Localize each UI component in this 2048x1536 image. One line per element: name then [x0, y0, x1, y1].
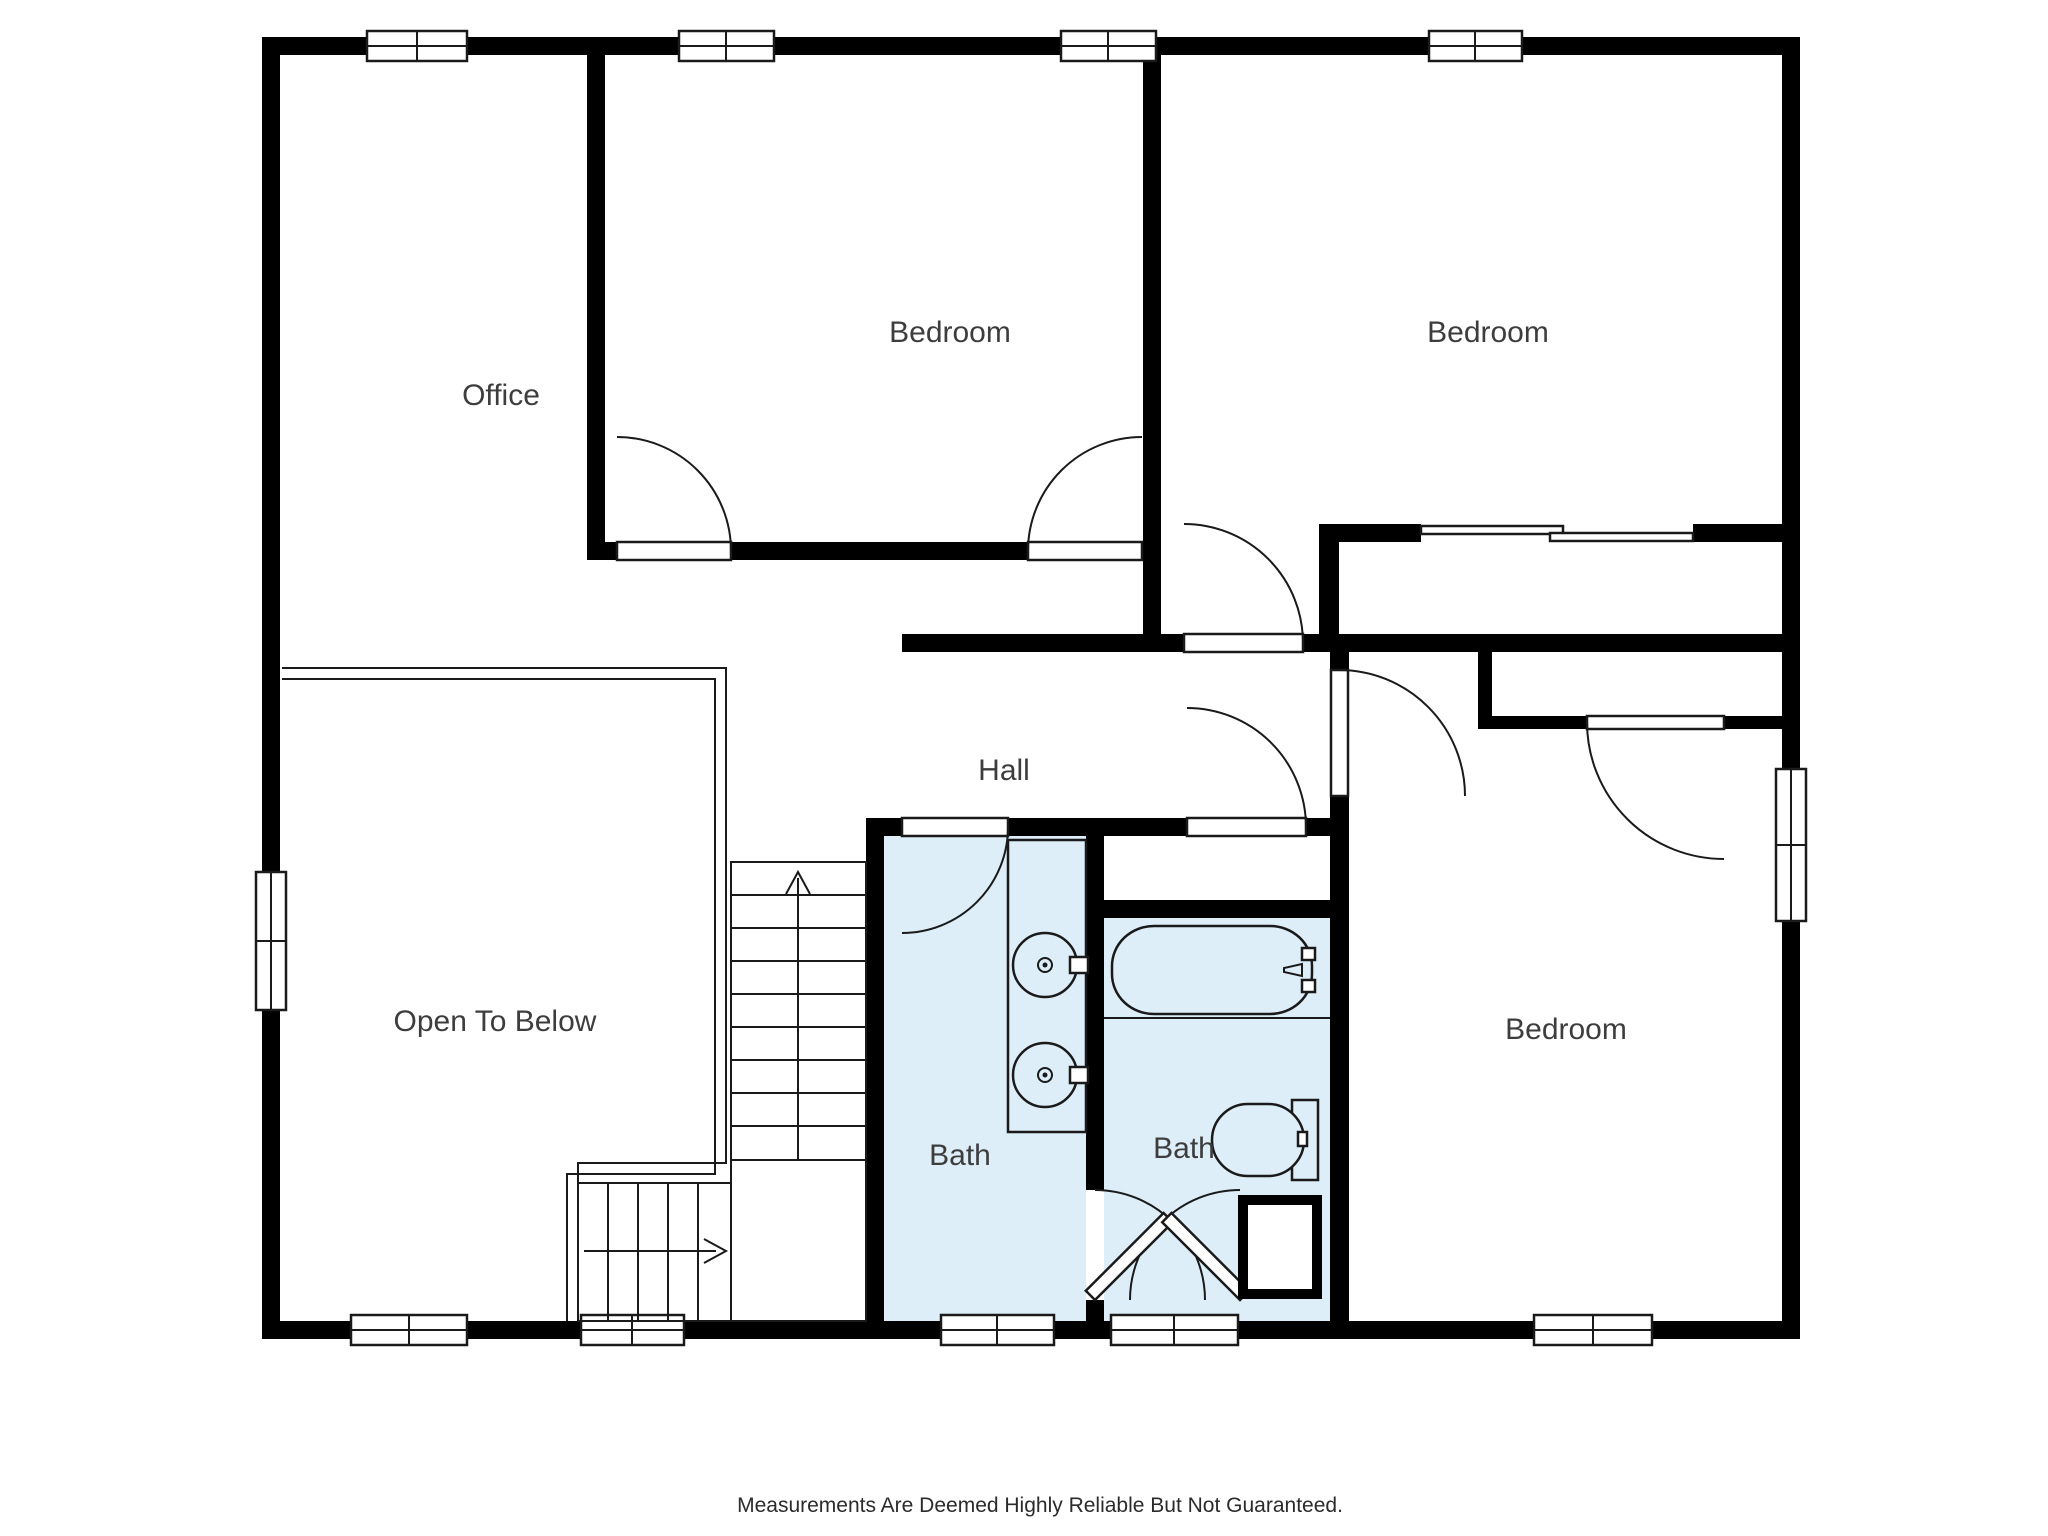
window-bottom-1: [351, 1315, 467, 1345]
window-top-1: [367, 31, 467, 61]
open-to-below-railing: [282, 668, 726, 1321]
stairs-landing: [731, 1160, 866, 1321]
toilet-icon: [1212, 1100, 1318, 1180]
wall-bath-west: [866, 818, 884, 1339]
wall-bedroom-west-a: [1330, 652, 1349, 670]
wall-closet-west: [1319, 524, 1339, 652]
door-bedroom-closet: [1587, 716, 1724, 859]
label-bedroom-top-middle: Bedroom: [889, 316, 1011, 349]
wall-hall-south-b: [1008, 818, 1187, 836]
wall-midbed-bottom-a: [587, 542, 617, 560]
wall-hall-north-a: [902, 634, 1184, 652]
wall-hall-south-c: [1306, 818, 1330, 836]
wall-bedroom-divider: [1143, 55, 1161, 652]
bathtub-icon: [1104, 926, 1330, 1018]
wall-bath-divider-b: [1086, 1300, 1104, 1339]
label-office: Office: [462, 379, 540, 412]
floor-plan-drawing: Office Bedroom Bedroom Hall Open To Belo…: [0, 0, 2048, 1536]
wall-bedcloset-a: [1492, 716, 1587, 729]
stairs-upper-run: [731, 862, 866, 1160]
wall-bedroom-west-b: [1330, 796, 1349, 1339]
sliding-closet-doors: [1421, 526, 1693, 541]
staircase: [578, 862, 866, 1321]
window-bottom-4: [1111, 1315, 1238, 1345]
wall-bath-right-north: [1104, 900, 1330, 918]
stairs-lower-run: [578, 1183, 731, 1321]
label-open-to-below: Open To Below: [394, 1005, 597, 1038]
wall-closet-south: [1339, 634, 1782, 652]
wall-bath-divider-a: [1086, 836, 1104, 1190]
door-bedroom-bottom-right: [1331, 670, 1465, 796]
door-midbedroom-left: [617, 437, 731, 560]
label-hall: Hall: [978, 754, 1030, 787]
exterior-wall-right: [1782, 37, 1800, 1339]
label-bedroom-bottom-right: Bedroom: [1505, 1013, 1627, 1046]
vanity-double-sink: [1008, 840, 1088, 1132]
disclaimer-text: Measurements Are Deemed Highly Reliable …: [737, 1494, 1343, 1517]
door-bedroom-top-right: [1184, 524, 1303, 652]
exterior-wall-left: [262, 37, 280, 1339]
window-right: [1776, 769, 1806, 921]
window-top-3: [1061, 31, 1156, 61]
wall-closet-stub: [1478, 652, 1492, 729]
label-bedroom-top-right: Bedroom: [1427, 316, 1549, 349]
bath-closet: [1243, 1200, 1317, 1294]
window-bottom-3: [941, 1315, 1054, 1345]
wall-midbed-bottom-b: [731, 542, 1028, 560]
exterior-wall-top: [262, 37, 1800, 55]
window-top-2: [679, 31, 774, 61]
door-midbedroom-right: [1028, 437, 1142, 560]
label-bath-left: Bath: [929, 1139, 991, 1172]
window-top-4: [1429, 31, 1522, 61]
wall-sliding-b: [1693, 524, 1782, 542]
wall-office-bedroom: [587, 55, 605, 560]
window-left: [256, 872, 286, 1010]
floor-plan-page: Office Bedroom Bedroom Hall Open To Belo…: [0, 0, 2048, 1536]
door-hall-closet: [1187, 708, 1306, 836]
label-bath-right: Bath: [1153, 1132, 1215, 1165]
wall-sliding-a: [1339, 524, 1421, 542]
window-bottom-5: [1534, 1315, 1652, 1345]
wall-bedcloset-b: [1724, 716, 1782, 729]
